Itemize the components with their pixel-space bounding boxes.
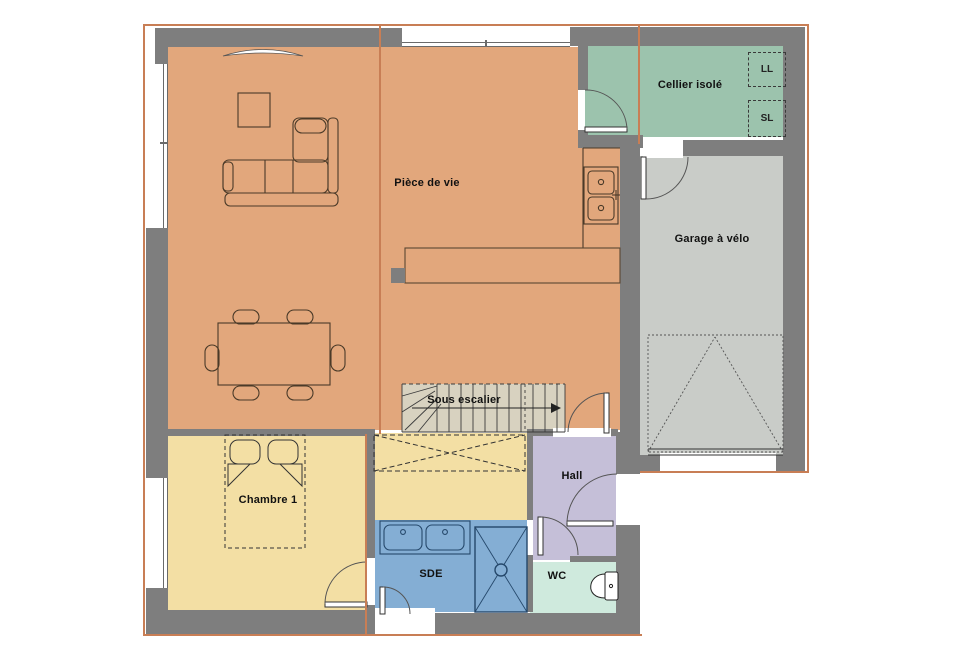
label-stairs: Sous escalier — [427, 394, 501, 406]
cellier-door — [585, 90, 627, 132]
label-wc: WC — [548, 570, 567, 582]
boundary-bottom — [143, 634, 642, 636]
bedroom-door — [325, 562, 367, 607]
boundary-top — [143, 24, 809, 26]
dryer-box: SL — [748, 100, 786, 137]
label-cellier: Cellier isolé — [658, 79, 722, 91]
bed — [225, 435, 305, 548]
kitchen-counter — [583, 148, 620, 248]
living-hall-door — [568, 393, 609, 433]
label-bedroom: Chambre 1 — [239, 494, 298, 506]
sofa — [223, 118, 338, 206]
dining-table-set — [205, 310, 345, 400]
pillow-left — [230, 440, 260, 464]
bathroom-fixtures — [380, 521, 618, 612]
label-hall: Hall — [562, 470, 583, 482]
label-living: Pièce de vie — [394, 177, 459, 189]
garage-door-symbol — [648, 335, 783, 455]
washing-machine-box: LL — [748, 52, 786, 87]
boundary-split-lower — [365, 434, 367, 635]
vanity-double-sink — [380, 521, 470, 554]
pillow-right — [268, 440, 298, 464]
washing-machine-label: LL — [761, 64, 773, 75]
label-sde: SDE — [419, 568, 442, 580]
staircase — [402, 384, 565, 432]
toilet — [591, 572, 618, 600]
boundary-split-upper — [379, 24, 381, 434]
boundary-right — [807, 24, 809, 473]
boundary-cellier-split — [638, 24, 640, 144]
wall-niche-arc — [223, 50, 303, 57]
living-furniture — [205, 50, 620, 401]
kitchen-island — [405, 248, 620, 283]
dryer-label: SL — [761, 113, 774, 124]
boundary-garage-bottom — [640, 471, 809, 473]
sde-exterior-door — [380, 587, 410, 614]
boundary-left — [143, 24, 145, 636]
garage-door-swing — [641, 157, 688, 199]
structural-post — [391, 268, 405, 283]
label-garage: Garage à vélo — [675, 233, 750, 245]
shower — [475, 527, 527, 612]
wardrobe — [374, 435, 525, 471]
floor-plan: LL SL Pièce de vie Cellier isolé Garage … — [0, 0, 960, 664]
side-table — [238, 93, 270, 127]
